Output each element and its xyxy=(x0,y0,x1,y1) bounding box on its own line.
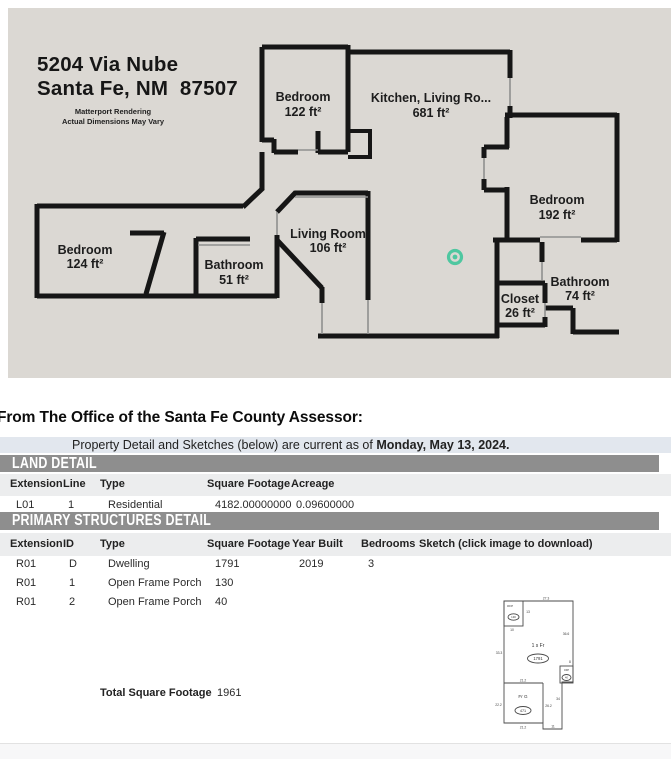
notice-date: Monday, May 13, 2024. xyxy=(376,438,509,452)
cell-type: Dwelling xyxy=(108,558,150,570)
land-detail-header-row: Extension Line Type Square Footage Acrea… xyxy=(0,474,671,496)
cell-square-footage: 4182.00000000 xyxy=(215,499,291,511)
room-area-bedroom-122: 122 ft² xyxy=(285,105,322,119)
notice-text: Property Detail and Sketches (below) are… xyxy=(72,438,376,452)
sketch-dim: 13 xyxy=(526,610,530,614)
sketch-dim: 21.2 xyxy=(520,726,527,730)
primary-structures-section-bar: PRIMARY STRUCTURES DETAIL xyxy=(0,512,659,530)
cell-extension: L01 xyxy=(16,499,34,511)
col-id: ID xyxy=(63,538,74,550)
sketch-house-value: 1791 xyxy=(533,656,543,661)
room-area-bedroom-124: 124 ft² xyxy=(67,257,104,271)
notice-bar: Property Detail and Sketches (below) are… xyxy=(0,437,671,453)
cell-type: Open Frame Porch xyxy=(108,596,202,608)
page: { "floor_plan": { "bg_color": "#dbd8d3",… xyxy=(0,0,671,758)
col-square-footage: Square Footage xyxy=(207,538,290,550)
cell-square-footage: 1791 xyxy=(215,558,239,570)
col-sketch: Sketch (click image to download) xyxy=(419,538,593,550)
room-label-bedroom-192: Bedroom xyxy=(530,193,585,207)
cell-extension: R01 xyxy=(16,596,36,608)
assessor-heading: From The Office of the Santa Fe County A… xyxy=(0,409,363,427)
cell-type: Open Frame Porch xyxy=(108,577,202,589)
cell-line: 1 xyxy=(68,499,74,511)
cell-square-footage: 40 xyxy=(215,596,227,608)
room-label-bedroom-124: Bedroom xyxy=(58,243,113,257)
sketch-ofp-top-value: 130 xyxy=(511,615,516,619)
plan-disclaimer: Matterport Rendering Actual Dimensions M… xyxy=(37,107,189,127)
col-type: Type xyxy=(100,538,125,550)
room-area-kitchen-living: 681 ft² xyxy=(413,106,450,120)
structure-row: R01 D Dwelling 1791 2019 3 xyxy=(0,558,671,572)
col-acreage: Acreage xyxy=(291,478,334,490)
sketch-dim: 27.3 xyxy=(543,597,550,601)
col-extension: Extension xyxy=(10,478,63,490)
primary-structures-header-row: Extension ID Type Square Footage Year Bu… xyxy=(0,533,671,556)
room-label-closet: Closet xyxy=(501,292,540,306)
sketch-dim: 26.2 xyxy=(545,704,552,708)
address-line1: 5204 Via Nube xyxy=(37,53,238,77)
floor-plan-image: Bedroom 122 ft² Kitchen, Living Ro... 68… xyxy=(0,0,671,378)
cell-bedrooms: 3 xyxy=(368,558,374,570)
room-label-living-room: Living Room xyxy=(290,227,366,241)
cell-extension: R01 xyxy=(16,577,36,589)
land-detail-section-bar: LAND DETAIL xyxy=(0,455,659,472)
sketch-house-label: 1 s Fr xyxy=(532,643,545,649)
cell-square-footage: 130 xyxy=(215,577,233,589)
sketch-garage-value: 471 xyxy=(520,709,526,713)
sketch-svg: OFP 130 1 s Fr 1791 OFP 40 Fr G 471 27.3… xyxy=(480,585,671,745)
room-label-kitchen-living: Kitchen, Living Ro... xyxy=(371,91,491,105)
sketch-garage-label: Fr G xyxy=(518,694,528,699)
sketch-ofp-right-label: OFP xyxy=(564,668,570,672)
sketch-dim: 33.3 xyxy=(496,651,503,655)
room-area-bedroom-192: 192 ft² xyxy=(539,208,576,222)
col-type: Type xyxy=(100,478,125,490)
sketch-dim: 11 xyxy=(551,725,555,729)
room-area-bathroom-51: 51 ft² xyxy=(219,273,249,287)
room-label-bathroom-74: Bathroom xyxy=(550,275,609,289)
total-square-footage-value: 1961 xyxy=(217,687,241,699)
sketch-image[interactable]: OFP 130 1 s Fr 1791 OFP 40 Fr G 471 27.3… xyxy=(480,585,671,745)
primary-structures-title: PRIMARY STRUCTURES DETAIL xyxy=(12,512,211,529)
address-block: 5204 Via Nube Santa Fe, NM 87507 Matterp… xyxy=(37,53,238,127)
room-area-closet: 26 ft² xyxy=(505,306,535,320)
land-detail-title: LAND DETAIL xyxy=(12,455,97,472)
sketch-ofp-right-value: 40 xyxy=(565,676,568,680)
room-area-bathroom-74: 74 ft² xyxy=(565,289,595,303)
sketch-dim: 10 xyxy=(510,628,514,632)
col-square-footage: Square Footage xyxy=(207,478,290,490)
footer-band xyxy=(0,743,671,759)
cell-id: 2 xyxy=(69,596,75,608)
cell-acreage: 0.09600000 xyxy=(296,499,354,511)
col-bedrooms: Bedrooms xyxy=(361,538,415,550)
address-line2: Santa Fe, NM 87507 xyxy=(37,77,238,101)
sketch-dim: 36.6 xyxy=(563,632,570,636)
cell-id: 1 xyxy=(69,577,75,589)
total-square-footage-label: Total Square Footage xyxy=(100,687,212,699)
room-label-bathroom-51: Bathroom xyxy=(204,258,263,272)
cell-extension: R01 xyxy=(16,558,36,570)
room-label-bedroom-122: Bedroom xyxy=(276,90,331,104)
cell-year-built: 2019 xyxy=(299,558,323,570)
col-year-built: Year Built xyxy=(292,538,343,550)
sketch-dim: 22.2 xyxy=(495,703,502,707)
col-extension: Extension xyxy=(10,538,63,550)
col-line: Line xyxy=(63,478,86,490)
room-area-living-room: 106 ft² xyxy=(310,241,347,255)
cell-id: D xyxy=(69,558,77,570)
sketch-dim: 21.2 xyxy=(520,679,527,683)
sketch-dim: 8 xyxy=(569,660,571,664)
sketch-dim: 34 xyxy=(556,697,560,701)
cell-type: Residential xyxy=(108,499,162,511)
sketch-ofp-top-label: OFP xyxy=(507,604,513,608)
land-detail-row: L01 1 Residential 4182.00000000 0.096000… xyxy=(0,499,671,513)
